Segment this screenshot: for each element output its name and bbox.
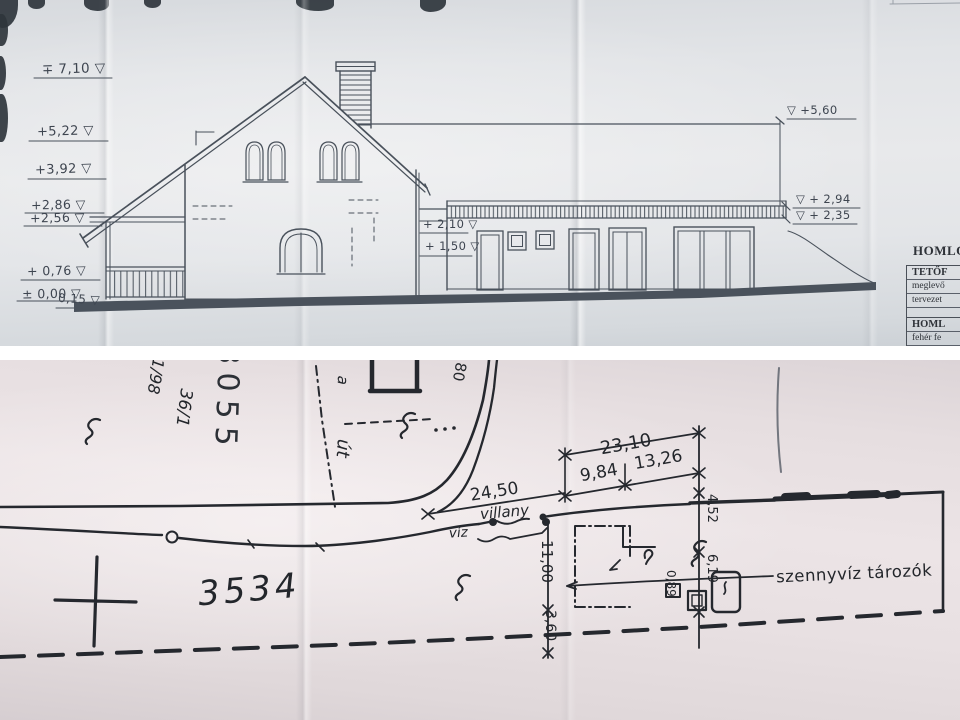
legend-row-existing: meglevő <box>907 280 960 294</box>
finish-legend-table: HOMLO TETŐF meglevő tervezet HOML fehér … <box>906 243 960 346</box>
level-label-210: + 2,10 ▽ <box>423 217 478 231</box>
site-plan-drawing <box>0 360 960 720</box>
dim-452: 4,52 <box>704 494 719 523</box>
dim-360: 3,60 <box>542 610 558 641</box>
ground-band <box>74 282 876 312</box>
legend-row-planned: tervezet <box>907 294 960 308</box>
road-label-a: a <box>334 375 352 385</box>
legend-facade-header: HOML <box>907 318 960 332</box>
house-number-80: 80 <box>449 361 470 383</box>
level-label-560: ▽ +5,60 <box>787 103 838 117</box>
dim-089: 0,89 <box>664 570 678 597</box>
level-label-076: + 0,76 ▽ <box>27 262 86 278</box>
legend-title: HOMLO <box>906 243 960 259</box>
level-label-015: 0,15 ▽ <box>58 291 101 307</box>
utility-label-viz: víz <box>448 524 468 541</box>
site-plan-photo: 3534 3055 1/98 36/1 a út 80 23,10 9,84 1… <box>0 360 960 720</box>
panel-gap <box>0 346 960 360</box>
level-label-235: ▽ + 2,35 <box>796 208 851 222</box>
dim-1100: 11,00 <box>538 540 556 583</box>
parcel-number-3055: 3055 <box>207 360 246 454</box>
legend-spacer <box>907 308 960 318</box>
level-label-710: ∓ 7,10 ▽ <box>42 60 106 78</box>
level-label-294: ▽ + 2,94 <box>796 192 851 206</box>
legend-roof-header: TETŐF <box>907 266 960 280</box>
scanned-drawings-photo: ∓ 7,10 ▽ +5,22 ▽ +3,92 ▽ +2,86 ▽ +2,56 ▽… <box>0 0 960 720</box>
level-label-392: +3,92 ▽ <box>35 161 92 178</box>
level-label-150: + 1,50 ▽ <box>425 239 480 253</box>
elevation-photo: ∓ 7,10 ▽ +5,22 ▽ +3,92 ▽ +2,86 ▽ +2,56 ▽… <box>0 0 960 346</box>
road-label-ut: út <box>331 438 354 458</box>
level-label-256: +2,56 ▽ <box>30 210 85 226</box>
dim-619: 6,19 <box>704 554 719 583</box>
level-label-522: +5,22 ▽ <box>37 123 94 139</box>
elevation-drawing <box>0 0 960 346</box>
legend-row-white: fehér fe <box>907 332 960 346</box>
